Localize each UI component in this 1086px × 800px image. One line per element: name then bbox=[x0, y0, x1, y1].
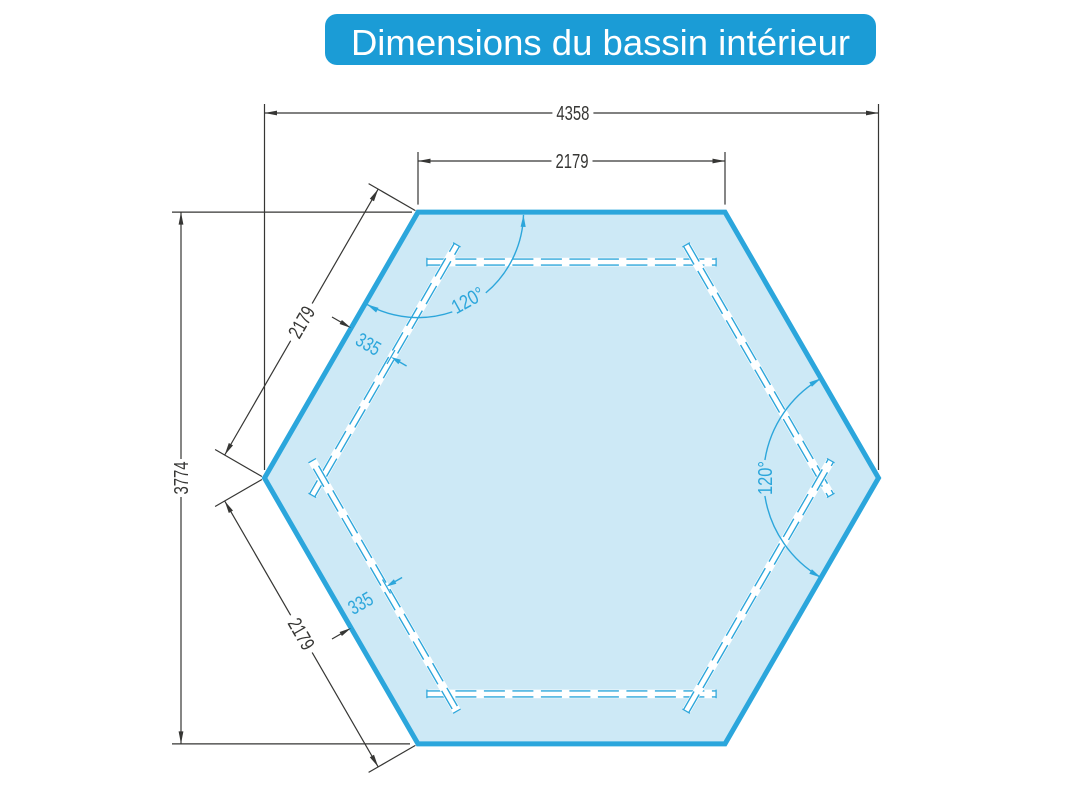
svg-text:3774: 3774 bbox=[171, 462, 193, 495]
svg-text:120°: 120° bbox=[755, 461, 777, 495]
svg-text:4358: 4358 bbox=[556, 103, 589, 125]
svg-text:2179: 2179 bbox=[556, 151, 589, 173]
